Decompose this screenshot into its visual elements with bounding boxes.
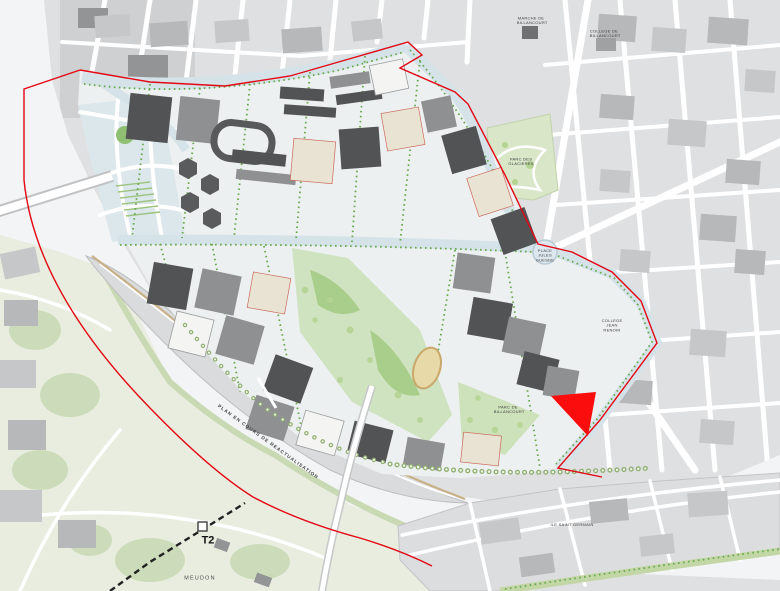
meudon-label: MEUDON (184, 576, 216, 582)
college-de-billancourt-label: COLLEGE DE BILLANCOURT (590, 29, 619, 38)
ile-saint-germain-label: ILE SAINT GERMAIN (550, 523, 593, 528)
parc-de-billancourt-label: PARC DE BILLANCOURT (494, 405, 523, 414)
masterplan-map: PLAN EN COURS DE REACTUALISATION T2 MEUD… (0, 0, 780, 591)
marche-de-billancourt-label: MARCHE DE BILLANCOURT (517, 16, 546, 25)
place-jules-guesde-label: PLACE JULES GUESDE (533, 249, 558, 263)
school-building (596, 38, 616, 51)
tram-t2-label: T2 (202, 535, 215, 548)
parc-des-glacieres-label: PARC DES GLACIERES (507, 157, 536, 166)
college-jean-renoir-label: COLLEGE JEAN RENOIR (598, 319, 627, 333)
map-canvas (0, 0, 780, 591)
market-building (522, 26, 538, 39)
